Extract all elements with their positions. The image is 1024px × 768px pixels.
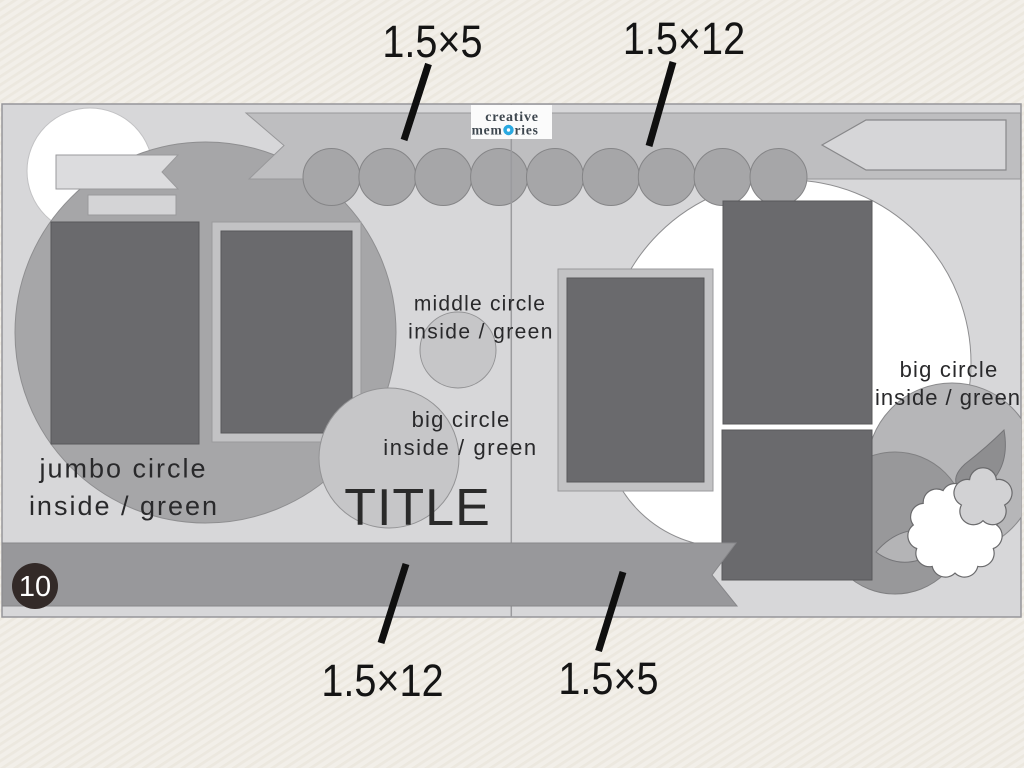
svg-text:1.5×12: 1.5×12 <box>623 14 745 64</box>
svg-text:1.5×5: 1.5×5 <box>558 654 658 704</box>
svg-text:middle circle: middle circle <box>414 293 546 316</box>
svg-text:inside / green: inside / green <box>383 435 538 460</box>
svg-text:big circle: big circle <box>412 407 511 432</box>
svg-text:inside / green: inside / green <box>875 385 1021 410</box>
svg-text:1.5×5: 1.5×5 <box>382 17 482 67</box>
svg-text:big circle: big circle <box>900 357 999 382</box>
svg-text:1.5×12: 1.5×12 <box>321 656 443 706</box>
svg-text:inside / green: inside / green <box>29 491 219 521</box>
svg-text:ries: ries <box>515 123 539 138</box>
svg-text:10: 10 <box>19 571 51 603</box>
svg-text:TITLE: TITLE <box>344 479 491 537</box>
svg-text:jumbo circle: jumbo circle <box>38 454 207 484</box>
svg-text:mem: mem <box>472 123 503 138</box>
svg-text:inside / green: inside / green <box>408 321 554 344</box>
